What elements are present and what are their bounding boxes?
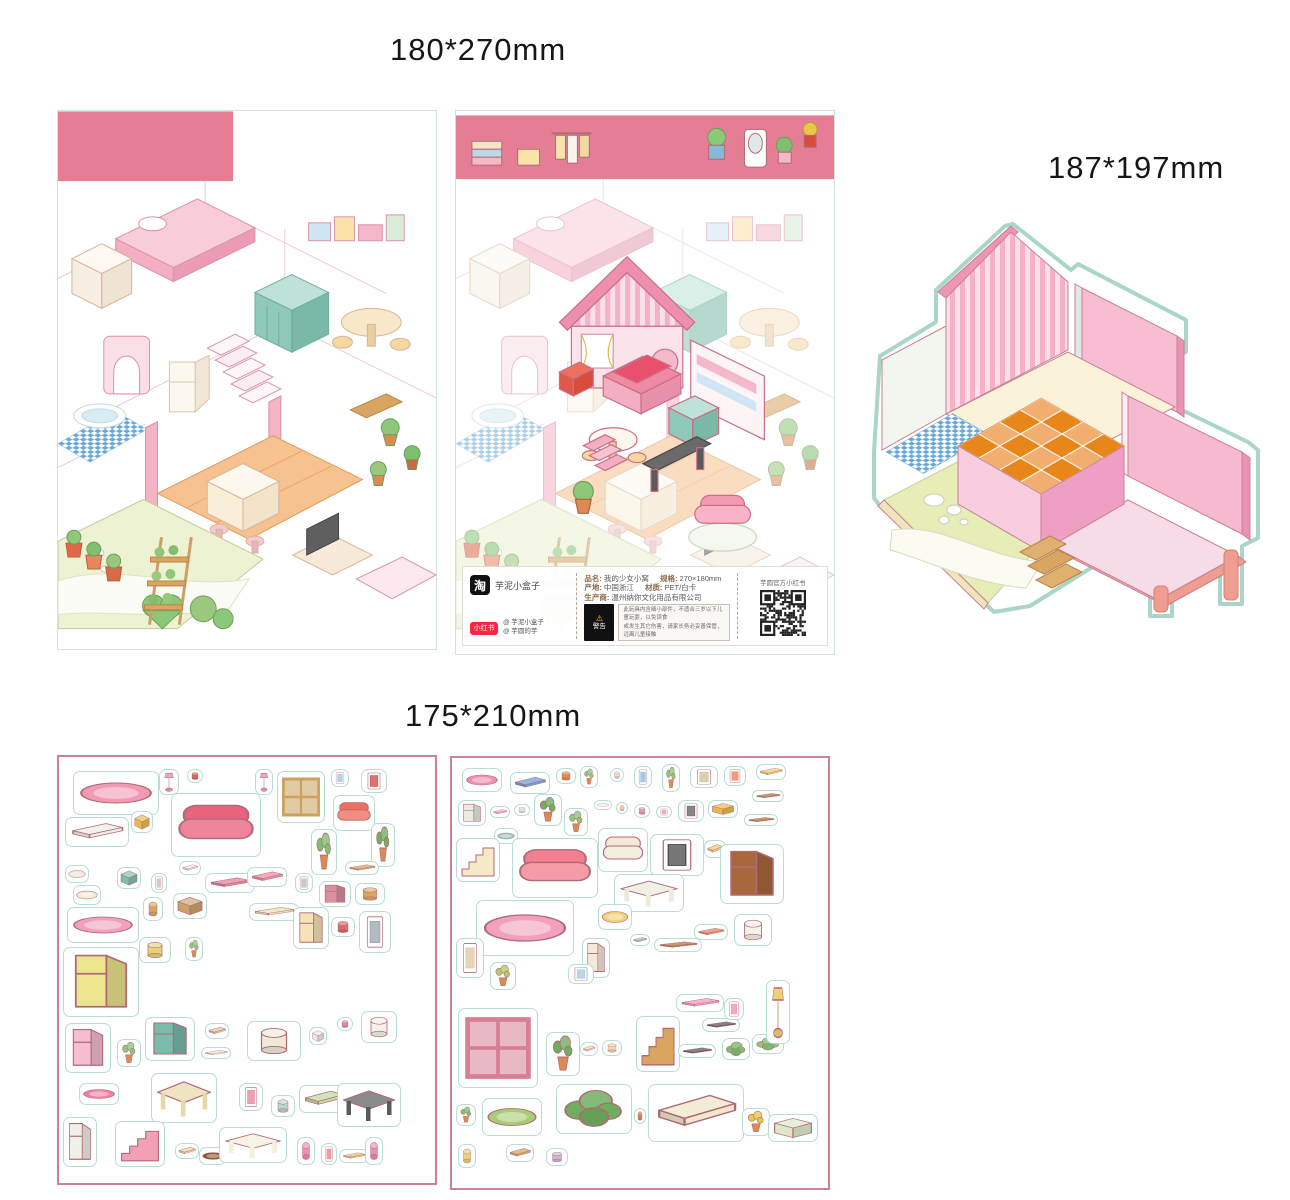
sticker-picture-frame [361,769,387,793]
sticker-oval-rug [67,907,139,943]
sticker-jar [458,1144,476,1168]
sticker-switch-plate [490,806,510,818]
sticker-small-frame [656,806,672,818]
divider [576,573,577,639]
sticker-teapot [634,804,650,818]
sticker-wall-shelf [456,938,484,978]
sticker-potted-plant [117,1039,141,1067]
sticker-mini-bookcase [319,881,351,907]
sticker-heart-frame [239,1083,263,1111]
xiaohongshu-logo-icon: 小红书 [470,622,498,635]
sticker-picture-frame [331,769,349,787]
sticker-bench [249,903,299,921]
xhs-account: @ 芋泥小盒子 [503,619,544,628]
sticker-hanging-plant [722,1038,750,1060]
sticker-crate [117,867,141,889]
sticker-shelf-board [345,861,379,875]
sticker-flower-pot [742,1108,770,1136]
sticker-rug [462,768,502,792]
sticker-plate [514,804,530,816]
sticker-blanket [598,904,632,930]
sheets-size-label: 175*210mm [405,698,581,734]
sticker-window-panel [458,1008,538,1088]
sticker-potted-plant [564,808,588,836]
sticker-shelf-board [702,1018,740,1032]
sticker-tv-stand [219,1127,287,1163]
sticker-wall-panel [690,766,718,788]
sticker-toilet [361,1011,397,1043]
sticker-cup [337,1017,353,1031]
sticker-dish [594,800,612,810]
warning-text: 此玩具内含细小部件，不适合三岁以下儿童玩耍，以免误食 或发生其它伤害，请家长务必… [618,604,730,641]
sticker-bushes [556,1084,632,1134]
sticker-shelf-board [678,1044,716,1058]
house-base-illustration [870,200,1270,620]
sticker-staircase [115,1121,165,1167]
qr-caption: 芋圆官方小红书 [760,577,806,587]
sticker-shelf-board [744,814,778,826]
sticker-bunk-shelf [720,844,784,904]
qr-code [760,590,806,636]
sticker-cushion [65,865,89,883]
sticker-small-frame [151,873,167,893]
sticker-desk [337,1083,401,1127]
sticker-corner-bathtub [247,1021,301,1061]
sticker-potted-plant [580,766,598,788]
sticker-tray [247,867,287,887]
sticker-potted-plant [534,794,562,826]
sticker-radiator-cabinet [145,1017,195,1061]
product-field-line: 生产商:温州纳你文化用品有限公司 [584,593,730,602]
sticker-basket [355,883,385,905]
sticker-shelf-board [752,790,784,802]
product-info-bar: 淘 芋泥小盒子 小红书 @ 芋泥小盒子 @ 芋圆的芋 品名:我的少女小窝 规格:… [462,566,828,646]
sticker-tv [650,834,704,876]
sticker-coffee-machine [458,800,486,826]
warning-badge: ⚠ 警告 [584,604,614,641]
sticker-dark-frame [678,800,704,822]
sticker-crate [173,893,207,919]
divider [737,573,738,639]
sticker-board [506,1144,534,1162]
sticker-flowers [490,962,516,990]
sticker-storage-box [131,811,153,833]
sticker-cactus [456,1104,476,1126]
sticker-table-lamp [255,769,273,795]
sticker-shelf-unit [63,947,139,1017]
sticker-tray [205,1023,229,1039]
sticker-clock [724,766,746,786]
sticker-bucket [271,1095,295,1117]
sticker-table-lamp [159,769,179,795]
sticker-potted-plant [371,823,395,867]
sticker-shelf-board [756,764,786,780]
sticker-outlet [295,873,313,893]
sticker-potted-plant [662,764,680,792]
sticker-slippers [179,861,201,875]
sticker-bar-stool [297,1137,315,1165]
posters-size-label: 180*270mm [390,32,566,68]
sticker-bottle [634,1108,646,1124]
sticker-potted-plant [185,937,203,961]
sticker-food-plate [556,768,576,784]
sticker-picture-frame [634,766,652,788]
shop-name: 芋泥小盒子 [495,579,540,592]
sticker-storage-shelf [708,800,738,818]
sticker-mirror [359,911,391,953]
xhs-account: @ 芋圆的芋 [503,628,544,637]
sticker-tray [510,772,550,794]
sticker-bread [602,1040,622,1056]
sticker-wall-shelf [65,817,129,847]
sticker-staircase [456,838,500,882]
sticker-potted-plant [546,1032,580,1076]
sticker-cloud-rug [73,885,101,905]
sticker-vanity [65,1023,111,1073]
sticker-side-table [734,914,772,946]
sticker-coat-rack [676,994,724,1012]
sticker-floor-lamp [766,980,790,1044]
sticker-tray [630,934,650,946]
house-base-diecut [870,200,1270,620]
sticker-picture-frame [724,998,744,1020]
sticker-shelf-board [654,938,702,952]
sticker-sheet-1 [57,755,437,1185]
sticker-board [694,924,728,940]
sticker-stool [143,897,163,921]
sticker-pond-rug [482,1098,542,1136]
base-size-label: 187*197mm [1048,150,1224,186]
sticker-board [201,1047,231,1059]
sticker-path-piece [648,1084,744,1142]
sticker-wardrobe-rack [293,907,329,949]
product-field-line: 产地:中国浙江 材质:PET/白卡 [584,583,730,592]
sticker-bed [171,793,261,857]
sticker-rug [73,771,159,815]
sticker-small-frame [321,1143,337,1165]
sticker-mat [175,1143,199,1159]
sticker-picture-frame [568,964,594,984]
sticker-pot [546,1148,568,1166]
sticker-bar-stool [365,1137,383,1165]
poster-front-illustration [58,111,436,649]
product-field-line: 品名:我的少女小窝 规格:270×180mm [584,574,730,583]
sticker-tissue-box [309,1027,327,1045]
sticker-potted-plant [311,829,337,875]
sticker-cup [616,802,628,814]
sticker-ladder-shelf [636,1016,680,1072]
sticker-flower-pot [331,917,355,937]
sticker-dining-set [151,1073,217,1123]
sticker-armchair [598,828,648,872]
poster-back-panel: 淘 芋泥小盒子 小红书 @ 芋泥小盒子 @ 芋圆的芋 品名:我的少女小窝 规格:… [455,110,835,655]
sticker-planter-box [768,1114,818,1142]
sticker-cup [610,768,624,782]
sticker-armchair [333,795,375,831]
sticker-ottoman [139,937,171,963]
sticker-envelope [580,1042,598,1056]
taobao-logo-icon: 淘 [470,575,490,595]
sticker-window [277,771,325,823]
sticker-bowl [187,769,203,783]
poster-front-panel [57,110,437,650]
sticker-sheet-2 [450,756,830,1190]
sticker-half-rug [79,1083,119,1105]
sticker-oval-rug [476,900,574,956]
sticker-fridge [63,1117,97,1167]
sticker-sofa [512,838,598,898]
